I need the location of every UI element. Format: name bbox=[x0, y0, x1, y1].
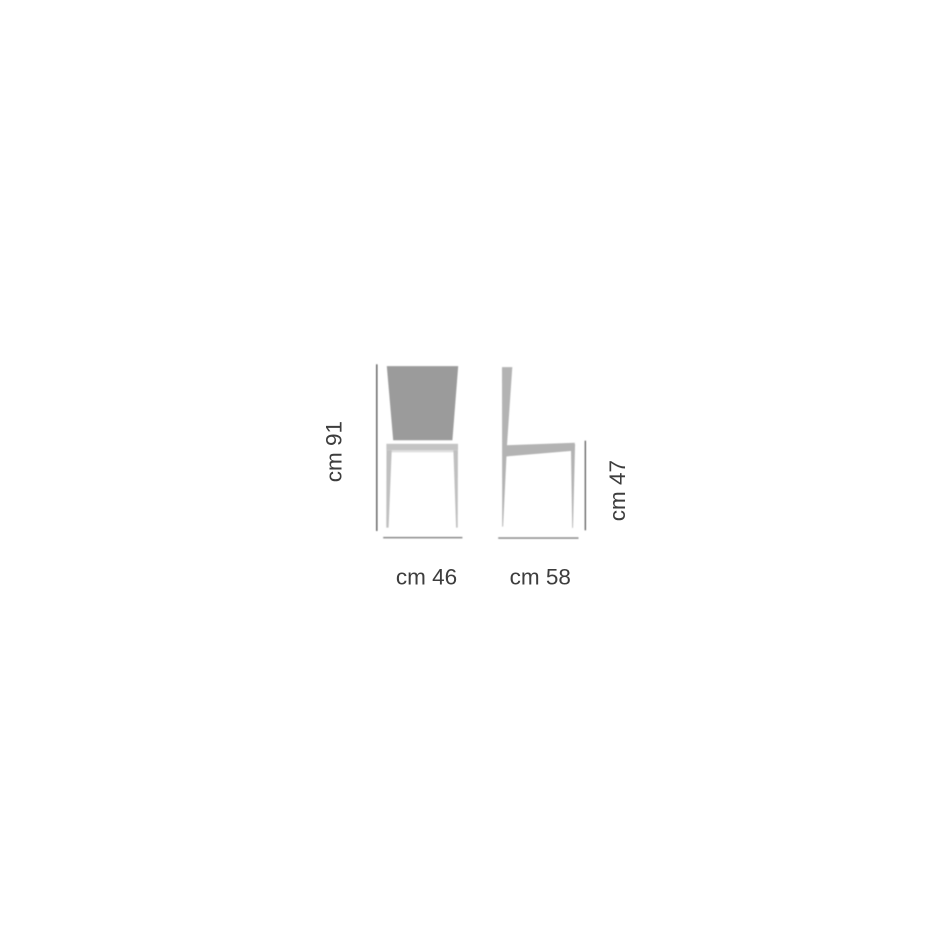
svg-text:cm 58: cm 58 bbox=[510, 564, 571, 589]
svg-text:cm 46: cm 46 bbox=[396, 564, 457, 589]
svg-text:cm 47: cm 47 bbox=[605, 460, 630, 521]
svg-text:cm 91: cm 91 bbox=[322, 421, 347, 482]
